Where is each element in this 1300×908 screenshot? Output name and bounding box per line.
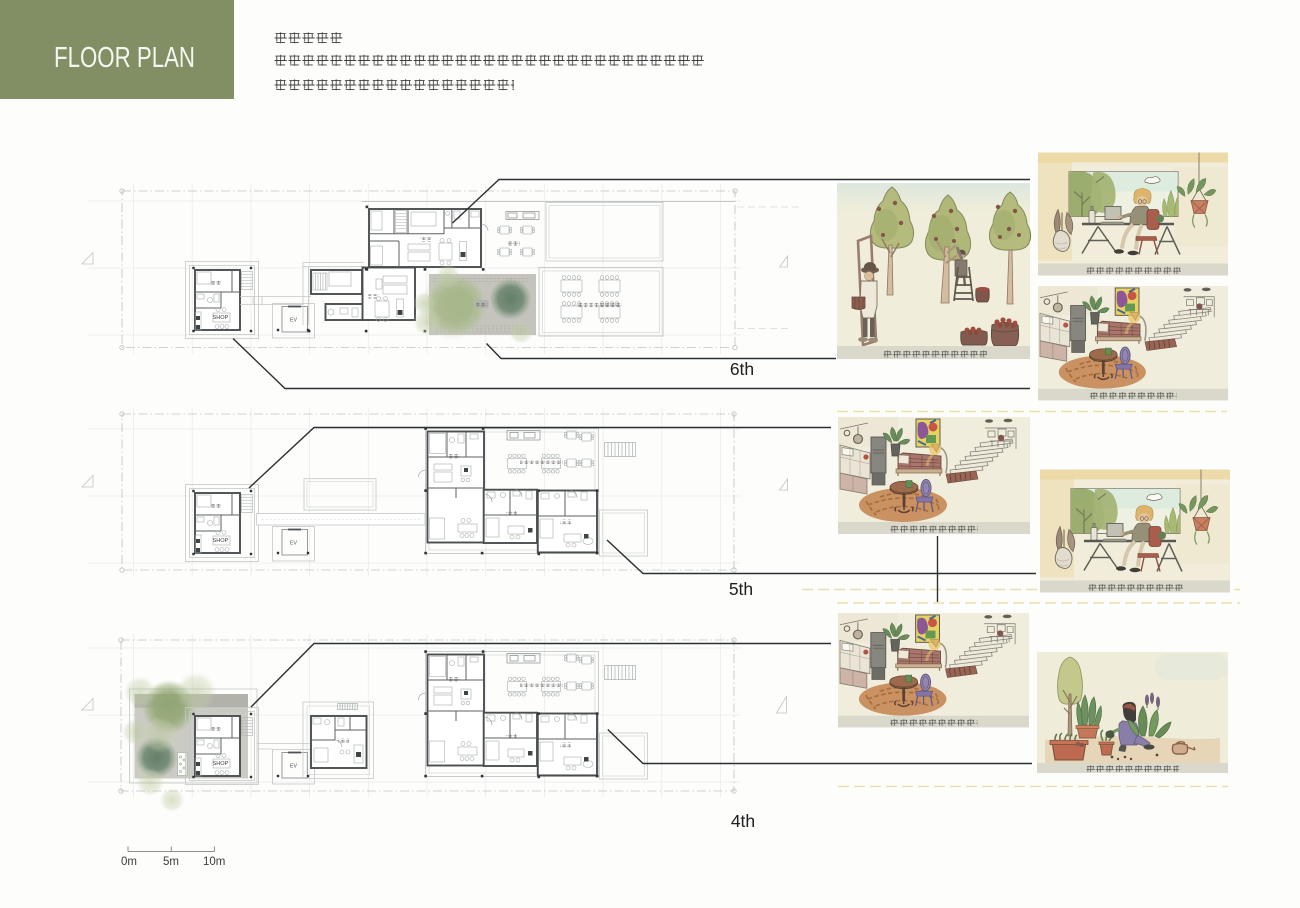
svg-text:5m: 5m bbox=[163, 856, 179, 868]
svg-text:6th: 6th bbox=[730, 359, 754, 379]
svg-text:0m: 0m bbox=[121, 856, 137, 868]
svg-text:4th: 4th bbox=[731, 811, 755, 831]
svg-text:FLOOR PLAN: FLOOR PLAN bbox=[54, 42, 195, 74]
svg-text:5th: 5th bbox=[729, 579, 753, 599]
svg-text:10m: 10m bbox=[203, 856, 225, 868]
